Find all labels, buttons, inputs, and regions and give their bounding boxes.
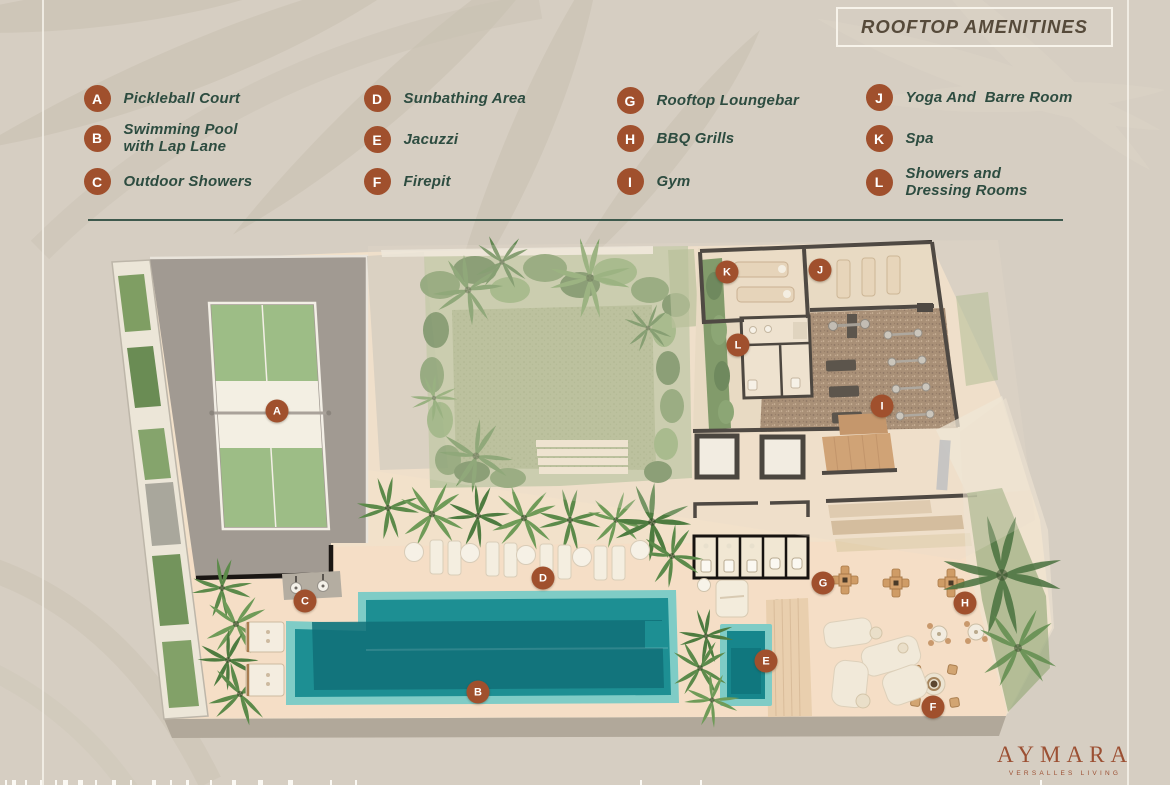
title-box: ROOFTOP AMENITINES — [836, 7, 1113, 47]
legend-label: Outdoor Showers — [124, 173, 253, 190]
legend-item-i: IGym — [617, 168, 691, 195]
crop-mark — [355, 780, 357, 785]
plan-marker-c: C — [294, 590, 317, 613]
crop-mark — [640, 780, 642, 785]
legend-label: Pickleball Court — [124, 90, 241, 107]
crop-mark — [170, 780, 172, 785]
legend-item-g: GRooftop Loungebar — [617, 87, 800, 114]
crop-mark — [258, 780, 263, 785]
plan-marker-h: H — [954, 592, 977, 615]
right-frame-line — [1127, 0, 1129, 785]
crop-mark — [210, 780, 212, 785]
crop-mark — [25, 780, 27, 785]
crop-mark — [12, 780, 16, 785]
legend-item-k: KSpa — [866, 125, 934, 152]
legend-label: Showers and Dressing Rooms — [906, 165, 1028, 199]
floor-plan — [0, 0, 1170, 785]
legend-label: Firepit — [404, 173, 451, 190]
legend-item-c: COutdoor Showers — [84, 168, 253, 195]
legend-badge: G — [617, 87, 644, 114]
legend-badge: E — [364, 126, 391, 153]
brand-tagline: VERSALLES LIVING — [995, 770, 1135, 777]
crop-mark — [63, 780, 68, 785]
crop-mark — [186, 780, 189, 785]
legend-label: Rooftop Loungebar — [657, 92, 800, 109]
plan-marker-f: F — [922, 696, 945, 719]
legend-label: Sunbathing Area — [404, 90, 526, 107]
plan-marker-d: D — [532, 567, 555, 590]
legend-label: Spa — [906, 130, 934, 147]
plan-marker-g: G — [812, 572, 835, 595]
crop-mark — [1040, 780, 1042, 785]
crop-mark — [5, 780, 7, 785]
plan-marker-i: I — [871, 395, 894, 418]
legend-item-h: HBBQ Grills — [617, 125, 735, 152]
crop-mark — [78, 780, 83, 785]
legend-badge: F — [364, 168, 391, 195]
legend-item-d: DSunbathing Area — [364, 85, 526, 112]
crop-mark — [288, 780, 293, 785]
legend-badge: D — [364, 85, 391, 112]
legend-badge: L — [866, 169, 893, 196]
crop-mark — [152, 780, 156, 785]
legend-item-l: LShowers and Dressing Rooms — [866, 165, 1028, 199]
legend-badge: B — [84, 125, 111, 152]
legend-badge: I — [617, 168, 644, 195]
crop-mark — [40, 780, 42, 785]
legend-badge: H — [617, 125, 644, 152]
plan-marker-b: B — [467, 681, 490, 704]
legend-label: Yoga And Barre Room — [906, 89, 1073, 106]
legend-label: Jacuzzi — [404, 131, 459, 148]
legend-item-a: APickleball Court — [84, 85, 241, 112]
legend-item-j: JYoga And Barre Room — [866, 84, 1073, 111]
left-frame-line — [42, 0, 44, 785]
rooftop-amenities-page: ROOFTOP AMENITINES APickleball CourtBSwi… — [0, 0, 1170, 785]
crop-mark — [232, 780, 236, 785]
crop-mark — [700, 780, 702, 785]
legend-label: BBQ Grills — [657, 130, 735, 147]
legend-badge: J — [866, 84, 893, 111]
plan-marker-j: J — [809, 259, 832, 282]
legend-item-b: BSwimming Pool with Lap Lane — [84, 121, 238, 155]
legend-badge: K — [866, 125, 893, 152]
plan-marker-e: E — [755, 650, 778, 673]
crop-mark — [112, 780, 116, 785]
legend-divider — [88, 219, 1063, 221]
crop-mark — [95, 780, 97, 785]
crop-mark — [55, 780, 57, 785]
legend-label: Swimming Pool with Lap Lane — [124, 121, 238, 155]
legend-item-f: FFirepit — [364, 168, 451, 195]
legend-badge: A — [84, 85, 111, 112]
brand-name: AYMARA — [995, 742, 1135, 768]
plan-marker-a: A — [266, 400, 289, 423]
brand-logo: AYMARA VERSALLES LIVING — [995, 742, 1135, 777]
legend-badge: C — [84, 168, 111, 195]
crop-mark — [330, 780, 332, 785]
plan-marker-k: K — [716, 261, 739, 284]
plan-marker-l: L — [727, 334, 750, 357]
page-title: ROOFTOP AMENITINES — [861, 16, 1088, 38]
legend-item-e: EJacuzzi — [364, 126, 459, 153]
legend-label: Gym — [657, 173, 691, 190]
crop-mark — [130, 780, 132, 785]
